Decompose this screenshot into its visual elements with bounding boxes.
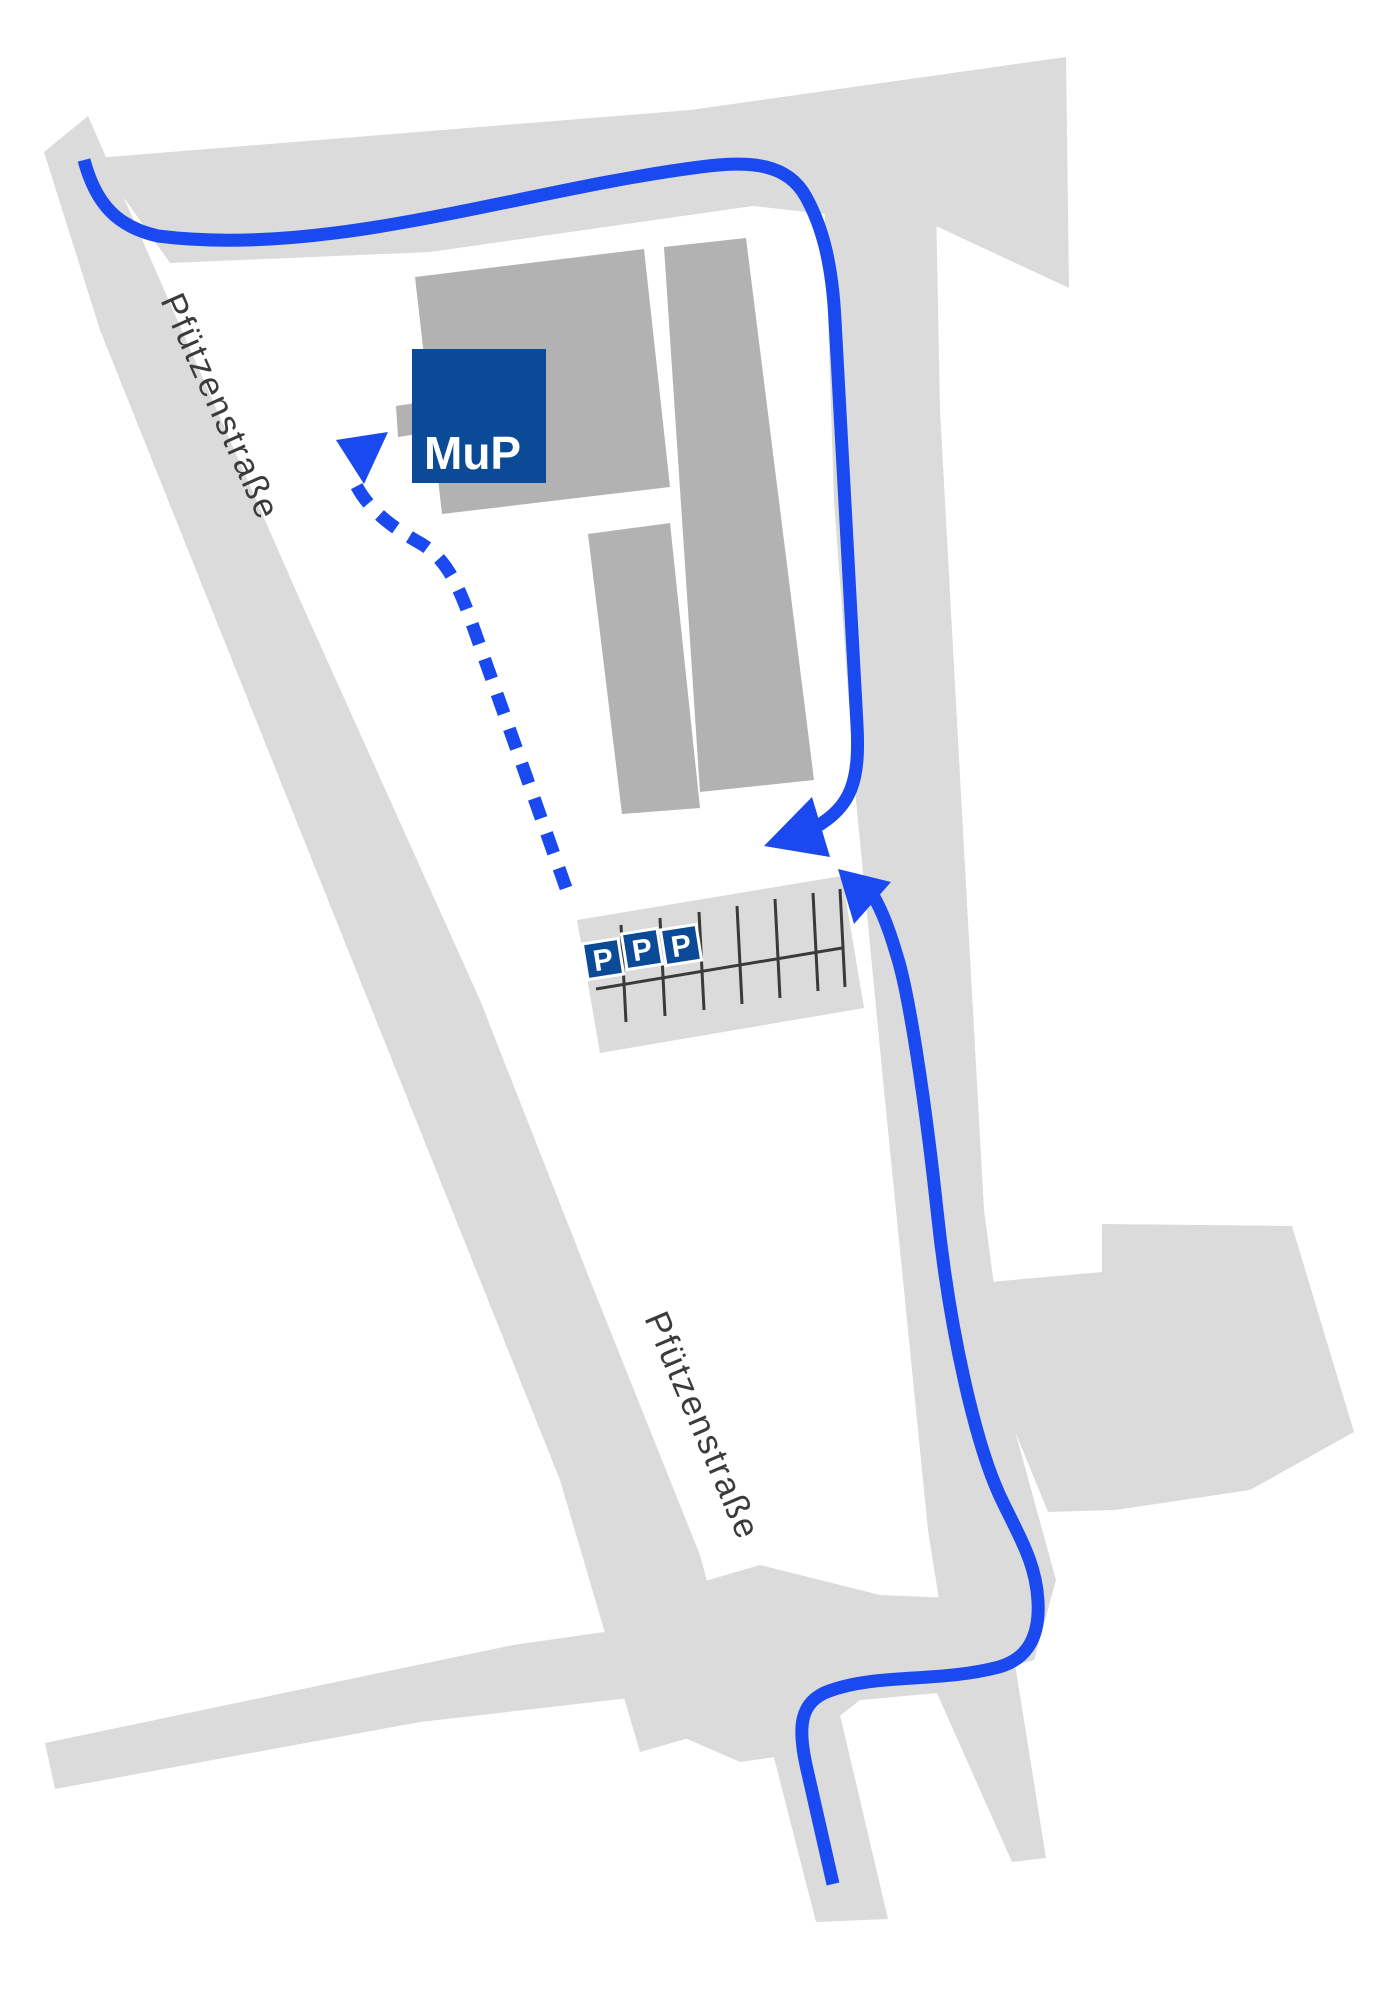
site-map: P P P MuP Pfützenstraße Pfützenstraße bbox=[0, 0, 1383, 2000]
mup-logo-text: MuP bbox=[424, 427, 521, 479]
mup-logo: MuP bbox=[412, 349, 546, 483]
